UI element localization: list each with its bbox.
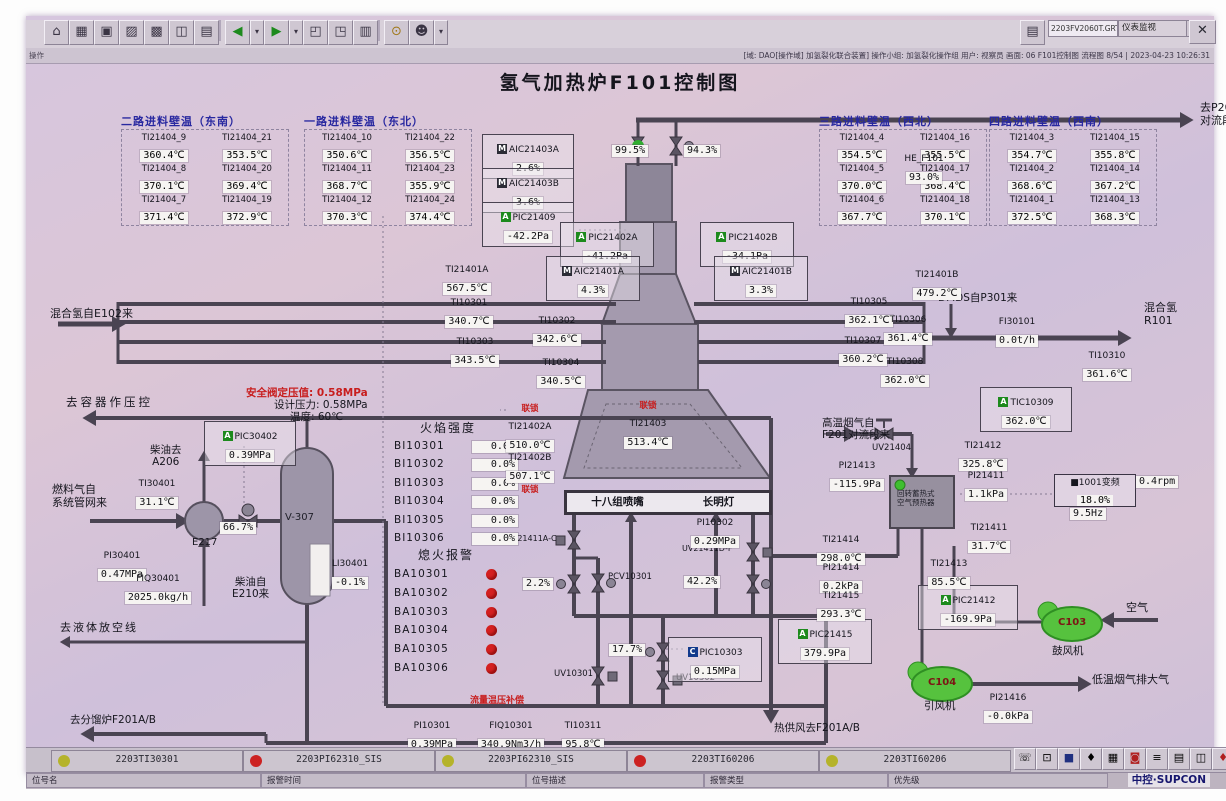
instrument-BI10306[interactable]: 0.0% — [472, 533, 518, 545]
instrument-HE_F101[interactable]: HE_F10193.0% — [892, 146, 956, 184]
instrument-PI21413[interactable]: PI21413-115.9Pa — [824, 453, 890, 491]
label-混合氢自E102来: 混合氢自E102来 — [50, 308, 133, 321]
instrument-TI21415[interactable]: TI21415293.3℃ — [812, 583, 870, 621]
instrument-TI21404_18[interactable]: TI21404_18370.1℃ — [904, 195, 986, 224]
instrument-TI21404_24[interactable]: TI21404_24374.4℃ — [389, 195, 471, 224]
instrument-TI21404_19[interactable]: TI21404_19372.9℃ — [206, 195, 288, 224]
monitor-icon[interactable]: ■ — [1058, 748, 1080, 770]
instrument-FIQ10301[interactable]: FIQ10301340.9Nm3/h — [468, 713, 554, 751]
instrument-TI21404_2[interactable]: TI21404_2368.6℃ — [991, 164, 1073, 193]
flameout-tag-BA10305: BA10305 — [394, 643, 449, 655]
label-C104: C104 — [928, 677, 956, 689]
instrument-TI21404_10[interactable]: TI21404_10350.6℃ — [306, 133, 388, 162]
value-chip-177[interactable]: 17.7% — [609, 644, 645, 656]
alarm-tag-label: 2203PI62310_SIS — [244, 754, 434, 765]
label-PCV10301: PCV10301 — [608, 573, 652, 583]
flameout-tag-BA10302: BA10302 — [394, 587, 449, 599]
instrument-TI21404_9[interactable]: TI21404_9360.4℃ — [123, 133, 205, 162]
instrument-PI10301[interactable]: PI103010.39MPa — [400, 713, 464, 751]
vfd-percent: 18.0% — [1077, 495, 1113, 506]
label-火焰强度: 火焰强度 — [420, 422, 476, 436]
label-柴油自: 柴油自 E210来 — [232, 576, 269, 600]
label-流量温压补偿: 流量温压补偿 — [470, 696, 524, 706]
label-空气: 空气 — [1126, 602, 1148, 615]
field-label-1: 位号名 — [26, 773, 261, 788]
label-柴油去: 柴油去 A206 — [150, 444, 182, 468]
instrument-TI21404_7[interactable]: TI21404_7371.4℃ — [123, 195, 205, 224]
process-diagram: 十八组喷嘴 长明灯 ■1001变频 18.0% 二路进料壁温（东南）TI2140… — [26, 16, 1226, 801]
wall-temp-group-title: 三路进料壁温（西北） — [819, 113, 939, 129]
instrument-TI21404_8[interactable]: TI21404_8370.1℃ — [123, 164, 205, 193]
label-去分馏炉F201A/B: 去分馏炉F201A/B — [70, 714, 156, 726]
label-安全阀定压值: 0.58: 安全阀定压值: 0.58MPa — [246, 387, 368, 399]
label-低温烟气排大气: 低温烟气排大气 — [1092, 674, 1169, 687]
alarm-summary-bar: 2203TI303012203PI62310_SIS2203PI62310_SI… — [26, 747, 1226, 773]
instrument-TI21402B[interactable]: TI21402B507.1℃联锁 — [500, 445, 560, 495]
flameout-tag-BA10301: BA10301 — [394, 568, 449, 580]
instrument-AIC21401A[interactable]: MAIC21401A4.3% — [546, 256, 640, 301]
list-icon[interactable]: ≡ — [1146, 748, 1168, 770]
phone-icon[interactable]: ☏ — [1014, 748, 1036, 770]
flame-tag-BI10305: BI10305 — [394, 514, 445, 526]
window-icon[interactable]: ◫ — [1190, 748, 1212, 770]
flameout-tag-BA10303: BA10303 — [394, 606, 449, 618]
label-引风机: 引风机 — [924, 700, 956, 712]
label-燃料气自: 燃料气自 系统管网来 — [52, 484, 107, 509]
flameout-alarm-dot-BA10303[interactable] — [486, 607, 497, 618]
value-chip-422[interactable]: 42.2% — [684, 576, 720, 588]
flame-tag-BI10304: BI10304 — [394, 495, 445, 507]
instrument-TI21413[interactable]: TI2141385.5℃ — [920, 551, 978, 589]
instrument-PI10302[interactable]: PI103020.29MPa — [684, 510, 746, 548]
instrument-TIC10309[interactable]: ATIC10309362.0℃ — [980, 387, 1072, 432]
label-温度: 60℃: 温度: 60℃ — [290, 411, 343, 423]
instrument-TI21404_11[interactable]: TI21404_11368.7℃ — [306, 164, 388, 193]
grid-icon[interactable]: ▦ — [1102, 748, 1124, 770]
instrument-TI21404_21[interactable]: TI21404_21353.5℃ — [206, 133, 288, 162]
instrument-TI21404_15[interactable]: TI21404_15355.8℃ — [1074, 133, 1156, 162]
label-热供风去F201A/B: 热供风去F201A/B — [774, 722, 860, 734]
alarm-icon[interactable]: ♦ — [1212, 748, 1226, 770]
instrument-TI10304[interactable]: TI10304340.5℃ — [532, 350, 590, 388]
field-label-5: 优先级 — [888, 773, 1108, 788]
instrument-TI21403[interactable]: 联锁TI21403513.4℃ — [614, 399, 682, 449]
flame-tag-BI10302: BI10302 — [394, 458, 445, 470]
alarm-tag-label: 2203TI30301 — [52, 754, 242, 765]
label-V-307: V-307 — [285, 512, 314, 524]
alarm-cell-3[interactable]: 2203PI62310_SIS — [435, 750, 627, 772]
diamond-icon[interactable]: ♦ — [1080, 748, 1102, 770]
label-去液体放空线: 去液体放空线 — [60, 622, 138, 635]
field-label-4: 报警类型 — [704, 773, 888, 788]
instrument-TI21404_20[interactable]: TI21404_20369.4℃ — [206, 164, 288, 193]
vfd-label: ■1001变频 — [1055, 475, 1135, 488]
instrument-TI21404_23[interactable]: TI21404_23355.9℃ — [389, 164, 471, 193]
dcs-screen: ⌂▦▣▨▩◫▤◀▾▶▾◰◳▥⊙☻▾▤2203FV2060T.GRT仪表监视▼✕ … — [26, 16, 1214, 775]
flameout-tag-BA10304: BA10304 — [394, 624, 449, 636]
instrument-BI10304[interactable]: 0.0% — [472, 496, 518, 508]
instrument-PIC21412[interactable]: APIC21412-169.9Pa — [918, 585, 1018, 630]
instrument-PI21411[interactable]: PI214111.1kPa — [957, 463, 1015, 501]
value-chip-95Hz[interactable]: 9.5Hz — [1070, 508, 1106, 520]
flameout-alarm-dot-BA10302[interactable] — [486, 588, 497, 599]
burner-groups-label: 十八组喷嘴 — [567, 493, 668, 512]
flameout-alarm-dot-BA10301[interactable] — [486, 569, 497, 580]
instrument-AIC21401B[interactable]: MAIC21401B3.3% — [714, 256, 808, 301]
label-高温烟气自: 高温烟气自 F201对流段来 — [822, 417, 890, 441]
instrument-TI21404_3[interactable]: TI21404_3354.7℃ — [991, 133, 1073, 162]
wall-temp-group-title: 四路进料壁温（西南） — [989, 113, 1109, 129]
alarm-tag-label: 2203TI60206 — [628, 754, 818, 765]
field-label-3: 位号描述 — [526, 773, 704, 788]
instrument-FIQ30401[interactable]: FIQ304012025.0kg/h — [116, 566, 200, 604]
value-chip-943[interactable]: 94.3% — [684, 145, 720, 157]
instrument-LI30401[interactable]: LI30401-0.1% — [322, 551, 378, 589]
instrument-PIC10303[interactable]: CPIC103030.15MPa — [668, 637, 762, 682]
flame-tag-BI10306: BI10306 — [394, 532, 445, 544]
lock-icon[interactable]: ⊡ — [1036, 748, 1058, 770]
label-UV10301: UV10301 — [554, 670, 593, 680]
alarm-tag-label: 2203TI60206 — [820, 754, 1010, 765]
label-设计压力: 0.58MP: 设计压力: 0.58MPa — [274, 399, 368, 411]
value-chip-22[interactable]: 2.2% — [523, 578, 553, 590]
wall-temp-group-title: 一路进料壁温（东北） — [304, 113, 424, 129]
alarm-cell-2[interactable]: 2203PI62310_SIS — [243, 750, 435, 772]
instrument-TI21404_12[interactable]: TI21404_12370.3℃ — [306, 195, 388, 224]
label-去容器作压控: 去容器作压控 — [66, 396, 153, 409]
alarm-cell-4[interactable]: 2203TI60206 — [627, 750, 819, 772]
instrument-FI30101[interactable]: FI301010.0t/h — [986, 309, 1048, 347]
alarm-tag-label: 2203PI62310_SIS — [436, 754, 626, 765]
instrument-BI10305[interactable]: 0.0% — [472, 515, 518, 527]
instrument-TI10308[interactable]: TI10308362.0℃ — [876, 349, 934, 387]
instrument-PIC21415[interactable]: APIC21415379.9Pa — [778, 619, 872, 664]
instrument-PI21416[interactable]: PI21416-0.0kPa — [978, 685, 1038, 723]
instrument-TI21404_14[interactable]: TI21404_14367.2℃ — [1074, 164, 1156, 193]
value-chip-667[interactable]: 66.7% — [220, 522, 256, 534]
vfd-1001[interactable]: ■1001变频 18.0% — [1054, 474, 1136, 507]
instrument-TI21404_6[interactable]: TI21404_6367.7℃ — [821, 195, 903, 224]
label-混合氢: 混合氢 R101 — [1144, 302, 1177, 327]
instrument-TI10311[interactable]: TI1031195.8℃ — [556, 713, 610, 751]
flame-tag-BI10303: BI10303 — [394, 477, 445, 489]
label-鼓风机: 鼓风机 — [1052, 645, 1084, 657]
value-chip-04rpm[interactable]: 0.4rpm — [1136, 476, 1178, 488]
instrument-TI21404_5[interactable]: TI21404_5370.0℃ — [821, 164, 903, 193]
instrument-TI21411[interactable]: TI2141131.7℃ — [960, 515, 1018, 553]
alarm-field-row: 位号名报警时间位号描述报警类型优先级 — [26, 772, 1226, 789]
instrument-TI10302[interactable]: TI10302342.6℃ — [528, 308, 586, 346]
wall-temp-group-title: 二路进料壁温（东南） — [121, 113, 241, 129]
instrument-TI30401[interactable]: TI3040131.1℃ — [128, 471, 186, 509]
value-chip-995[interactable]: 99.5% — [612, 145, 648, 157]
label-E217: E217 — [192, 537, 217, 549]
field-label-2: 报警时间 — [261, 773, 526, 788]
record-icon[interactable]: ◙ — [1124, 748, 1146, 770]
instrument-TI21404_1[interactable]: TI21404_1372.5℃ — [991, 195, 1073, 224]
report-icon[interactable]: ▤ — [1168, 748, 1190, 770]
flame-tag-BI10301: BI10301 — [394, 440, 445, 452]
alarm-cell-1[interactable]: 2203TI30301 — [51, 750, 243, 772]
flameout-alarm-dot-BA10306[interactable] — [486, 663, 497, 674]
instrument-TI21401B[interactable]: TI21401B479.2℃ — [904, 262, 970, 300]
instrument-TI21404_4[interactable]: TI21404_4354.5℃ — [821, 133, 903, 162]
flameout-tag-BA10306: BA10306 — [394, 662, 449, 674]
label-熄火报警: 熄火报警 — [418, 549, 474, 563]
label-去P201: 去P201 对流段 — [1200, 102, 1226, 127]
label-回转蓄热式: 回转蓄热式 空气预热器 — [897, 490, 935, 507]
instrument-TI10303[interactable]: TI10303343.5℃ — [446, 329, 504, 367]
instrument-TI10301[interactable]: TI10301340.7℃ — [440, 290, 498, 328]
instrument-TI21404_22[interactable]: TI21404_22356.5℃ — [389, 133, 471, 162]
instrument-PIC30402[interactable]: APIC304020.39MPa — [204, 421, 296, 466]
alarm-cell-5[interactable]: 2203TI60206 — [819, 750, 1011, 772]
instrument-TI21404_13[interactable]: TI21404_13368.3℃ — [1074, 195, 1156, 224]
instrument-TI10310[interactable]: TI10310361.6℃ — [1078, 343, 1136, 381]
label-C103: C103 — [1058, 617, 1086, 629]
